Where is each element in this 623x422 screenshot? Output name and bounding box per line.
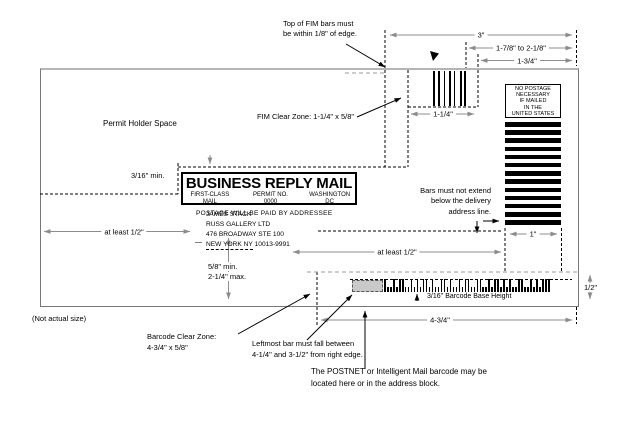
brm-subtitle-row: FIRST-CLASS MAIL PERMIT NO. 0000 WASHING… — [183, 192, 355, 206]
postnet-bar — [408, 287, 410, 292]
barcode-zone-note-line2: 4-3/4" x 5/8" — [147, 343, 188, 352]
postnet-bar — [468, 279, 470, 292]
facing-bar — [505, 163, 561, 168]
postnet-bar — [393, 279, 395, 292]
postnet-bar — [444, 279, 446, 292]
fim-top-note-line2: be within 1/8" of edge. — [283, 29, 357, 38]
facing-bar — [505, 130, 561, 135]
address-street: 476 BROADWAY STE 100 — [206, 230, 290, 240]
postnet-bar — [402, 279, 404, 292]
bars-note-line3: address line. — [448, 207, 491, 216]
address-zip: 10013-9991 — [253, 241, 290, 248]
horizontal-bars — [505, 122, 561, 225]
leftmost-bar-note: Leftmost bar must fall between 4-1/4" an… — [252, 338, 363, 361]
dim-1in-label: 1" — [527, 230, 540, 239]
leftmost-bar-note-line1: Leftmost bar must fall between — [252, 339, 354, 348]
postnet-bar — [426, 279, 428, 292]
postnet-bar — [512, 287, 514, 292]
postnet-bar — [503, 279, 505, 292]
fim-bar — [464, 71, 466, 106]
fim-bar — [444, 71, 445, 106]
barcode-zone-note: Barcode Clear Zone: 4-3/4" x 5/8" — [147, 331, 216, 354]
leftmost-bar-zone — [352, 280, 383, 292]
postnet-bar — [527, 287, 529, 292]
postnet-bar — [480, 279, 482, 292]
dim-4-3-4-label: 4-3/4" — [427, 316, 453, 325]
postnet-bar — [432, 279, 434, 292]
fim-clear-zone-label: FIM Clear Zone: 1-1/4" x 5/8" — [257, 112, 354, 121]
postnet-bar — [405, 287, 407, 292]
barcode-zone-note-line1: Barcode Clear Zone: — [147, 332, 216, 341]
dim-2-1-4-label: 2-1/4" max. — [206, 272, 248, 281]
postnet-bar — [411, 279, 413, 292]
postnet-bar — [414, 287, 416, 292]
postnet-bar — [545, 279, 547, 292]
no-postage-box: NO POSTAGE NECESSARY IF MAILED IN THE UN… — [505, 84, 561, 118]
facing-bar — [505, 122, 561, 127]
leftmost-bar-arrow — [307, 295, 352, 340]
not-actual-size-label: (Not actual size) — [32, 314, 86, 323]
postnet-bar — [533, 287, 535, 292]
facing-bar — [505, 212, 561, 217]
address-city-line: NEW YORK NY 10013-9991 — [206, 240, 290, 250]
postnet-bar — [477, 279, 479, 292]
postnet-bar — [441, 279, 443, 292]
fim-bars — [433, 71, 467, 106]
fim-top-note: Top of FIM bars must be within 1/8" of e… — [283, 19, 357, 40]
postnet-bar — [399, 279, 401, 292]
fim-bar — [460, 71, 462, 106]
fim-bar — [449, 71, 451, 106]
base-height-label: 3/16'' Barcode Base Height — [427, 292, 511, 301]
brm-permit: PERMIT NO. 0000 — [246, 192, 295, 206]
brm-class: FIRST-CLASS MAIL — [183, 192, 237, 206]
dim-3-16-label: 3/16" min. — [131, 171, 165, 180]
postnet-bar — [384, 279, 386, 292]
dim-1-1-4-label: 1-1/4" — [430, 110, 456, 119]
dim-at-least-half-mid-label: at least 1/2" — [374, 248, 419, 257]
postnet-bar — [465, 279, 467, 292]
facing-bar — [505, 220, 561, 225]
postnet-bar — [459, 279, 461, 292]
postnet-bar — [521, 279, 523, 292]
fim-top-tick — [430, 51, 439, 61]
fim-clear-zone-arrow — [357, 98, 401, 117]
dim-1-3-4-label: 1-3/4" — [514, 56, 540, 65]
bars-note: Bars must not extend below the delivery … — [398, 186, 491, 218]
address-company: RUSS GALLERY LTD — [206, 220, 290, 230]
facing-bar — [505, 138, 561, 143]
postnet-bar — [488, 279, 490, 292]
fim-bar — [433, 71, 435, 106]
brm-city: WASHINGTON DC — [304, 192, 355, 206]
leftmost-bar-note-line2: 4-1/4" and 3-1/2" from right edge. — [252, 350, 363, 359]
postnet-bar — [509, 279, 511, 292]
postnet-bar — [536, 279, 538, 292]
facing-bar — [505, 147, 561, 152]
bars-note-line2: below the delivery — [431, 196, 491, 205]
facing-bar — [505, 196, 561, 201]
postnet-bar — [387, 287, 389, 292]
postnet-bar — [396, 287, 398, 292]
postnet-bar — [548, 279, 550, 292]
brm-specification-diagram: Top of FIM bars must be within 1/8" of e… — [0, 0, 623, 422]
fim-top-note-line1: Top of FIM bars must — [283, 19, 353, 28]
address-line-tick: — — [195, 239, 202, 246]
postnet-bar — [539, 287, 541, 292]
bars-note-line1: Bars must not extend — [420, 186, 491, 195]
facing-bar — [505, 179, 561, 184]
postnet-bar — [450, 279, 452, 292]
barcode-zone-arrow — [238, 294, 310, 334]
facing-bar — [505, 188, 561, 193]
no-postage-line5: UNITED STATES — [506, 111, 560, 117]
postnet-bar — [420, 287, 422, 292]
fim-bar — [438, 71, 440, 106]
dim-3in-label: 3" — [475, 31, 488, 40]
facing-bar — [505, 171, 561, 176]
postnet-bar — [494, 279, 496, 292]
fim-top-note-arrow — [346, 44, 385, 67]
brm-title: BUSINESS REPLY MAIL — [183, 175, 355, 192]
dim-half-right-label: 1/2" — [582, 283, 599, 292]
dim-range-label: 1-7/8" to 2-1/8" — [493, 44, 549, 53]
postnet-note: The POSTNET or Intelligent Mail barcode … — [311, 366, 487, 391]
postnet-bar — [542, 279, 544, 292]
dim-at-least-half-left-label: at least 1/2" — [101, 227, 146, 236]
dim-5-8-label: 5/8" min. — [206, 262, 239, 271]
postnet-bar — [423, 279, 425, 292]
facing-bar — [505, 155, 561, 160]
fim-bar — [454, 71, 455, 106]
postnet-note-line1: The POSTNET or Intelligent Mail barcode … — [311, 367, 487, 376]
postnet-bar — [530, 279, 532, 292]
postnet-bar — [518, 279, 520, 292]
address-block: JAMES STACK RUSS GALLERY LTD 476 BROADWA… — [206, 210, 290, 250]
brm-legend-box: BUSINESS REPLY MAIL FIRST-CLASS MAIL PER… — [181, 172, 357, 205]
postnet-barcode — [384, 279, 551, 292]
postnet-bar — [524, 287, 526, 292]
address-name: JAMES STACK — [206, 210, 290, 220]
postnet-note-line2: located here or in the address block. — [311, 379, 440, 388]
facing-bar — [505, 204, 561, 209]
postnet-bar — [390, 287, 392, 292]
postnet-bar — [497, 279, 499, 292]
postnet-bar — [515, 287, 517, 292]
permit-holder-label: Permit Holder Space — [103, 119, 177, 128]
address-city: NEW YORK NY — [206, 241, 253, 250]
postnet-bar — [417, 279, 419, 292]
